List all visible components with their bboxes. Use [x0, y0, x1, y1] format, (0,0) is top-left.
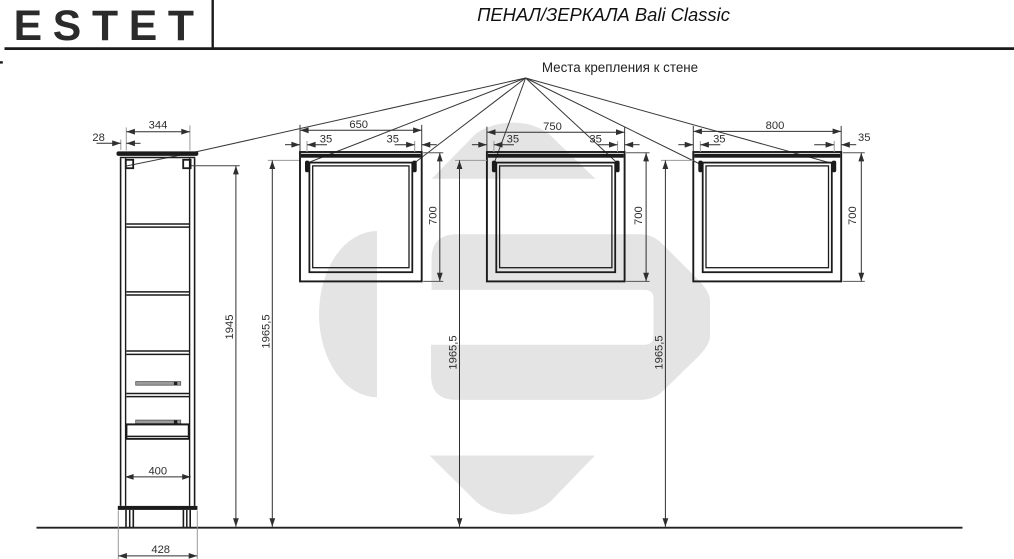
svg-text:650: 650: [349, 119, 368, 131]
svg-text:Места крепления к стене: Места крепления к стене: [542, 60, 698, 75]
svg-text:1945: 1945: [224, 315, 236, 340]
svg-text:35: 35: [858, 132, 870, 144]
svg-text:1965,5: 1965,5: [260, 314, 272, 348]
svg-text:35: 35: [320, 133, 332, 145]
svg-text:700: 700: [847, 206, 859, 225]
svg-text:ESTET: ESTET: [14, 2, 205, 50]
svg-text:35: 35: [713, 133, 725, 145]
svg-text:750: 750: [543, 121, 562, 133]
svg-text:35: 35: [507, 133, 519, 145]
svg-text:428: 428: [151, 544, 170, 556]
svg-text:700: 700: [428, 206, 440, 225]
svg-text:28: 28: [92, 132, 104, 144]
svg-text:35: 35: [386, 133, 398, 145]
svg-text:400: 400: [148, 465, 167, 477]
svg-text:344: 344: [149, 119, 168, 131]
svg-text:800: 800: [766, 120, 785, 132]
svg-text:35: 35: [589, 133, 601, 145]
svg-text:1965,5: 1965,5: [448, 335, 460, 369]
svg-text:1965,5: 1965,5: [653, 335, 665, 369]
svg-text:ПЕНАЛ/ЗЕРКАЛА Bali Classic: ПЕНАЛ/ЗЕРКАЛА Bali Classic: [477, 4, 730, 25]
svg-text:700: 700: [633, 206, 645, 225]
